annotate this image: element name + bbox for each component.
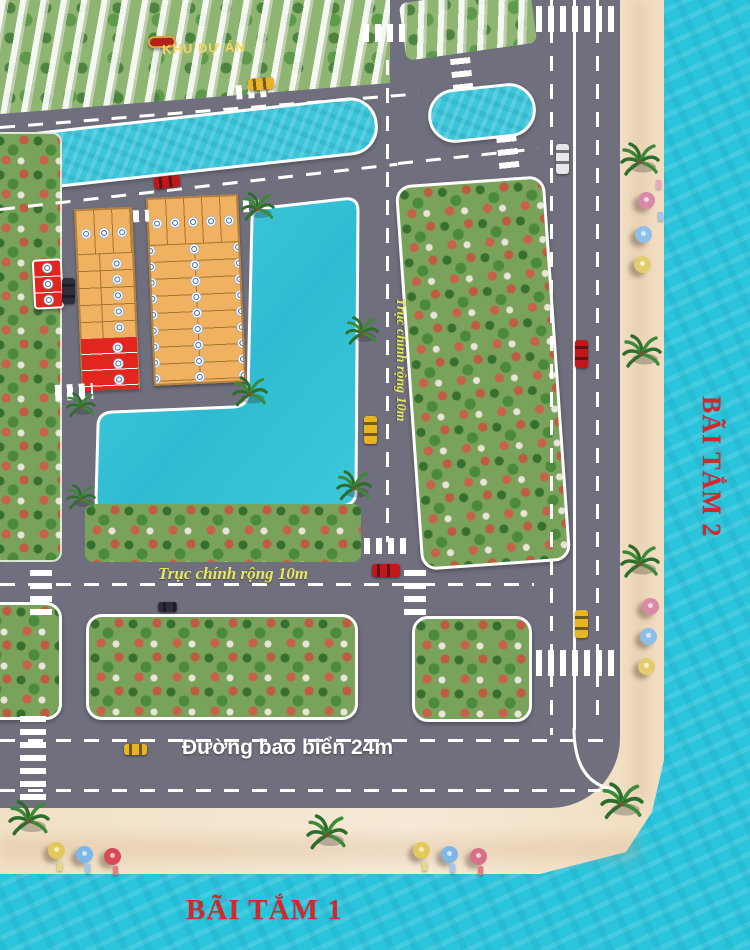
- palm-tree-icon: [620, 544, 660, 584]
- beach-chair-icon: [113, 866, 118, 875]
- beach-chair-icon: [85, 864, 90, 873]
- villa-block-south-2: [86, 614, 358, 720]
- beach-umbrella-icon: [470, 848, 487, 865]
- beach-umbrella-icon: [441, 846, 458, 863]
- beach-umbrella-icon: [640, 628, 657, 645]
- crosswalk: [364, 538, 412, 554]
- project-stamp-icon: [150, 242, 244, 384]
- coastal-road-line: [0, 789, 600, 792]
- car-icon: [372, 564, 400, 577]
- beach-umbrella-icon: [48, 842, 65, 859]
- project-stamp-icon: [34, 260, 62, 307]
- villa-block-south-3: [412, 616, 532, 722]
- car-icon: [364, 416, 377, 444]
- palm-tree-icon: [600, 782, 644, 826]
- crosswalk: [30, 570, 52, 616]
- lot-block-west: [74, 207, 140, 391]
- main-axis-vertical-centerline: [386, 60, 389, 542]
- villa-strip-lakeside: [85, 504, 361, 562]
- beach-2-label: BÃI TẮM 2: [696, 396, 726, 566]
- beach-chair-icon: [422, 862, 427, 871]
- beach-1-label: BÃI TẮM 1: [186, 894, 343, 927]
- beach-chair-icon: [656, 180, 661, 189]
- crosswalk: [20, 716, 46, 806]
- palm-tree-icon: [241, 192, 275, 226]
- palm-tree-icon: [336, 470, 372, 506]
- palm-tree-icon: [620, 142, 660, 182]
- beach-umbrella-icon: [635, 226, 652, 243]
- wet-sand-band: [630, 0, 648, 800]
- beach-umbrella-icon: [76, 846, 93, 863]
- masterplan-map: KHU DỰ ÁN: [0, 0, 750, 950]
- crosswalk: [536, 6, 618, 32]
- crosswalk: [536, 650, 618, 676]
- villa-block-east: [395, 175, 572, 571]
- main-axis-horizontal-label: Trục chính rộng 10m: [158, 564, 308, 584]
- palm-tree-icon: [622, 334, 662, 374]
- beach-umbrella-icon: [642, 598, 659, 615]
- beach-umbrella-icon: [104, 848, 121, 865]
- crosswalk: [496, 135, 520, 173]
- palm-tree-icon: [345, 316, 379, 350]
- beach-umbrella-icon: [638, 658, 655, 675]
- villa-strip-west: [0, 132, 62, 562]
- beach-chair-icon: [658, 212, 663, 221]
- car-icon: [158, 602, 177, 612]
- car-icon: [556, 144, 569, 174]
- palm-tree-icon: [66, 392, 96, 422]
- palm-tree-icon: [306, 814, 348, 856]
- beach-umbrella-icon: [638, 192, 655, 209]
- lot-block-central: [146, 194, 246, 386]
- palm-tree-icon: [232, 376, 268, 412]
- palm-tree-icon: [66, 484, 96, 514]
- beach-umbrella-icon: [413, 842, 430, 859]
- project-stamp-icon: [98, 337, 139, 391]
- palm-tree-icon: [8, 800, 50, 842]
- crosswalk: [450, 57, 474, 97]
- crosswalk: [404, 570, 426, 616]
- crosswalk: [363, 24, 409, 42]
- coast-avenue-lane-line: [596, 0, 599, 718]
- coastal-road-label: Đường bao biển 24m: [182, 736, 393, 760]
- crosswalk: [133, 210, 150, 223]
- beach-chair-icon: [57, 862, 62, 871]
- beach-chair-icon: [478, 866, 483, 875]
- car-icon: [124, 744, 147, 755]
- villa-block-south-1: [0, 602, 62, 720]
- car-icon: [575, 340, 588, 368]
- project-area-banner: KHU DỰ ÁN: [148, 36, 176, 49]
- main-axis-vertical-label: Trục chính rộng 10m: [392, 298, 408, 468]
- beach-chair-icon: [450, 864, 455, 873]
- car-icon: [575, 610, 588, 638]
- project-stamp-icon: [100, 253, 136, 338]
- project-stamp-icon: [148, 204, 237, 240]
- beach-umbrella-icon: [634, 256, 651, 273]
- project-area-banner-label: KHU DỰ ÁN: [162, 39, 246, 57]
- coast-avenue-lane-line: [550, 0, 553, 735]
- car-icon: [248, 77, 275, 91]
- project-stamp-icon: [76, 215, 131, 251]
- car-icon: [62, 278, 75, 304]
- red-lot-block-west: [32, 258, 65, 310]
